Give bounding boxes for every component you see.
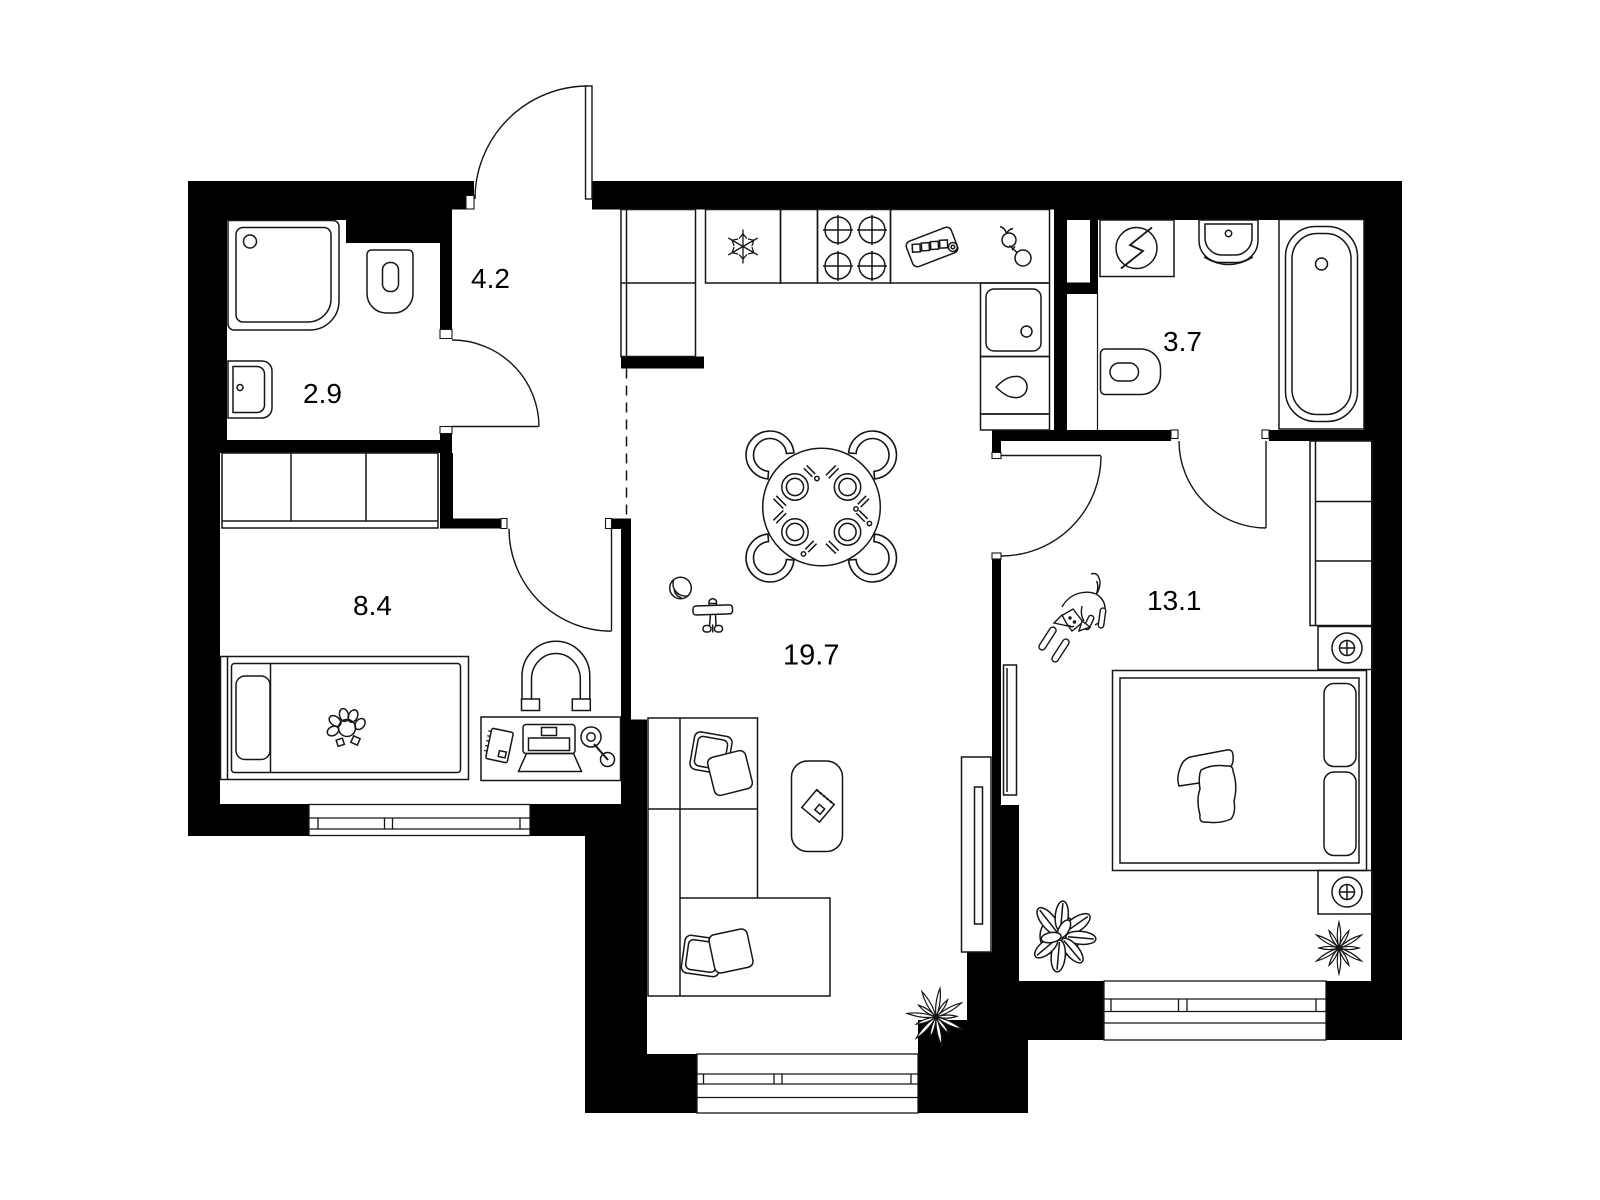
svg-text:4.2: 4.2 (471, 263, 510, 294)
svg-text:19.7: 19.7 (783, 640, 839, 672)
svg-text:8.4: 8.4 (353, 590, 392, 621)
svg-text:3.7: 3.7 (1163, 326, 1202, 357)
svg-text:2.9: 2.9 (303, 378, 342, 409)
svg-text:13.1: 13.1 (1147, 585, 1202, 616)
